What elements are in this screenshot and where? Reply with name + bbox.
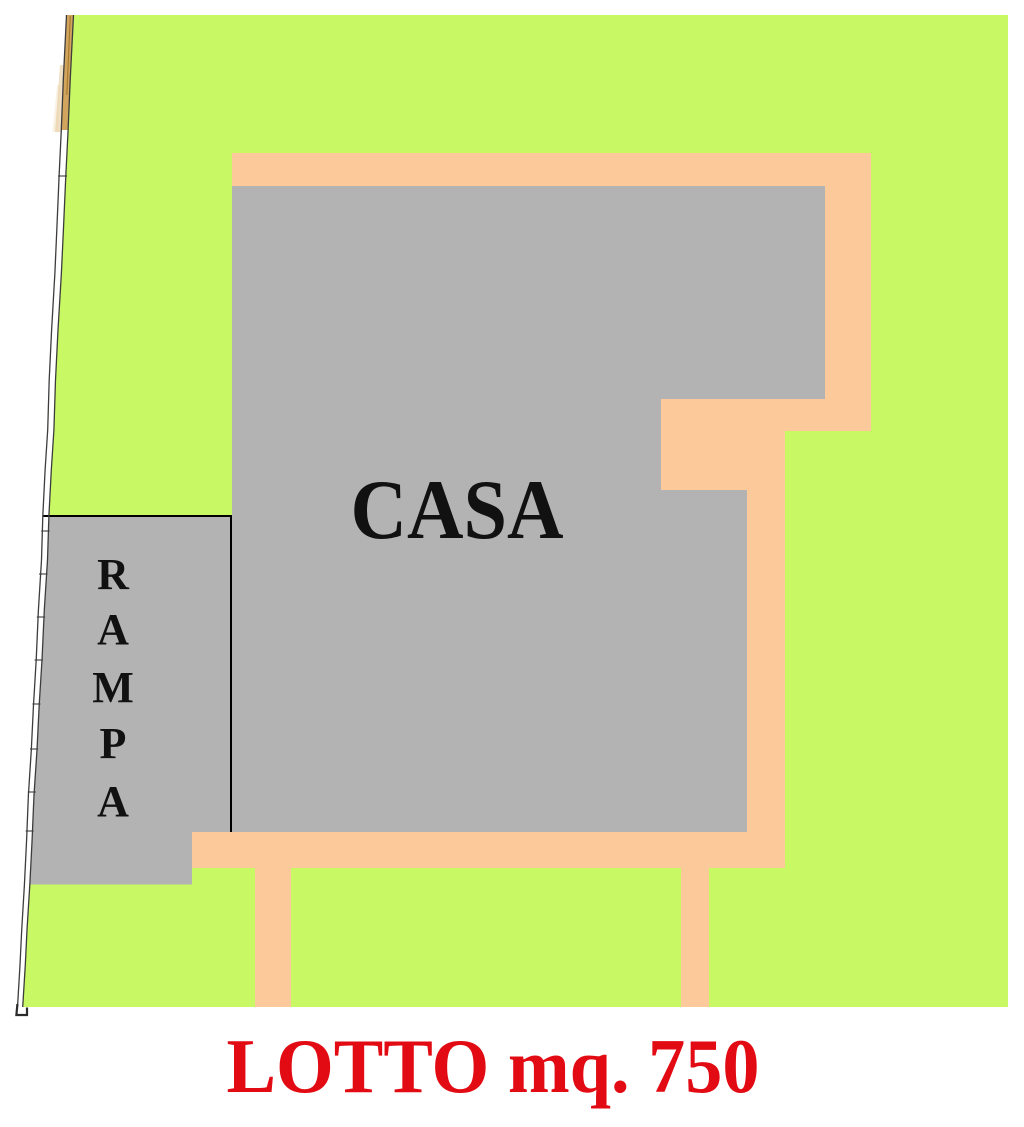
- svg-text:P: P: [100, 719, 127, 768]
- svg-text:A: A: [97, 777, 129, 826]
- svg-text:A: A: [97, 605, 129, 654]
- svg-text:M: M: [92, 663, 134, 712]
- svg-text:LOTTO mq. 750: LOTTO mq. 750: [227, 1023, 760, 1109]
- svg-text:CASA: CASA: [351, 463, 564, 557]
- svg-text:R: R: [97, 550, 130, 599]
